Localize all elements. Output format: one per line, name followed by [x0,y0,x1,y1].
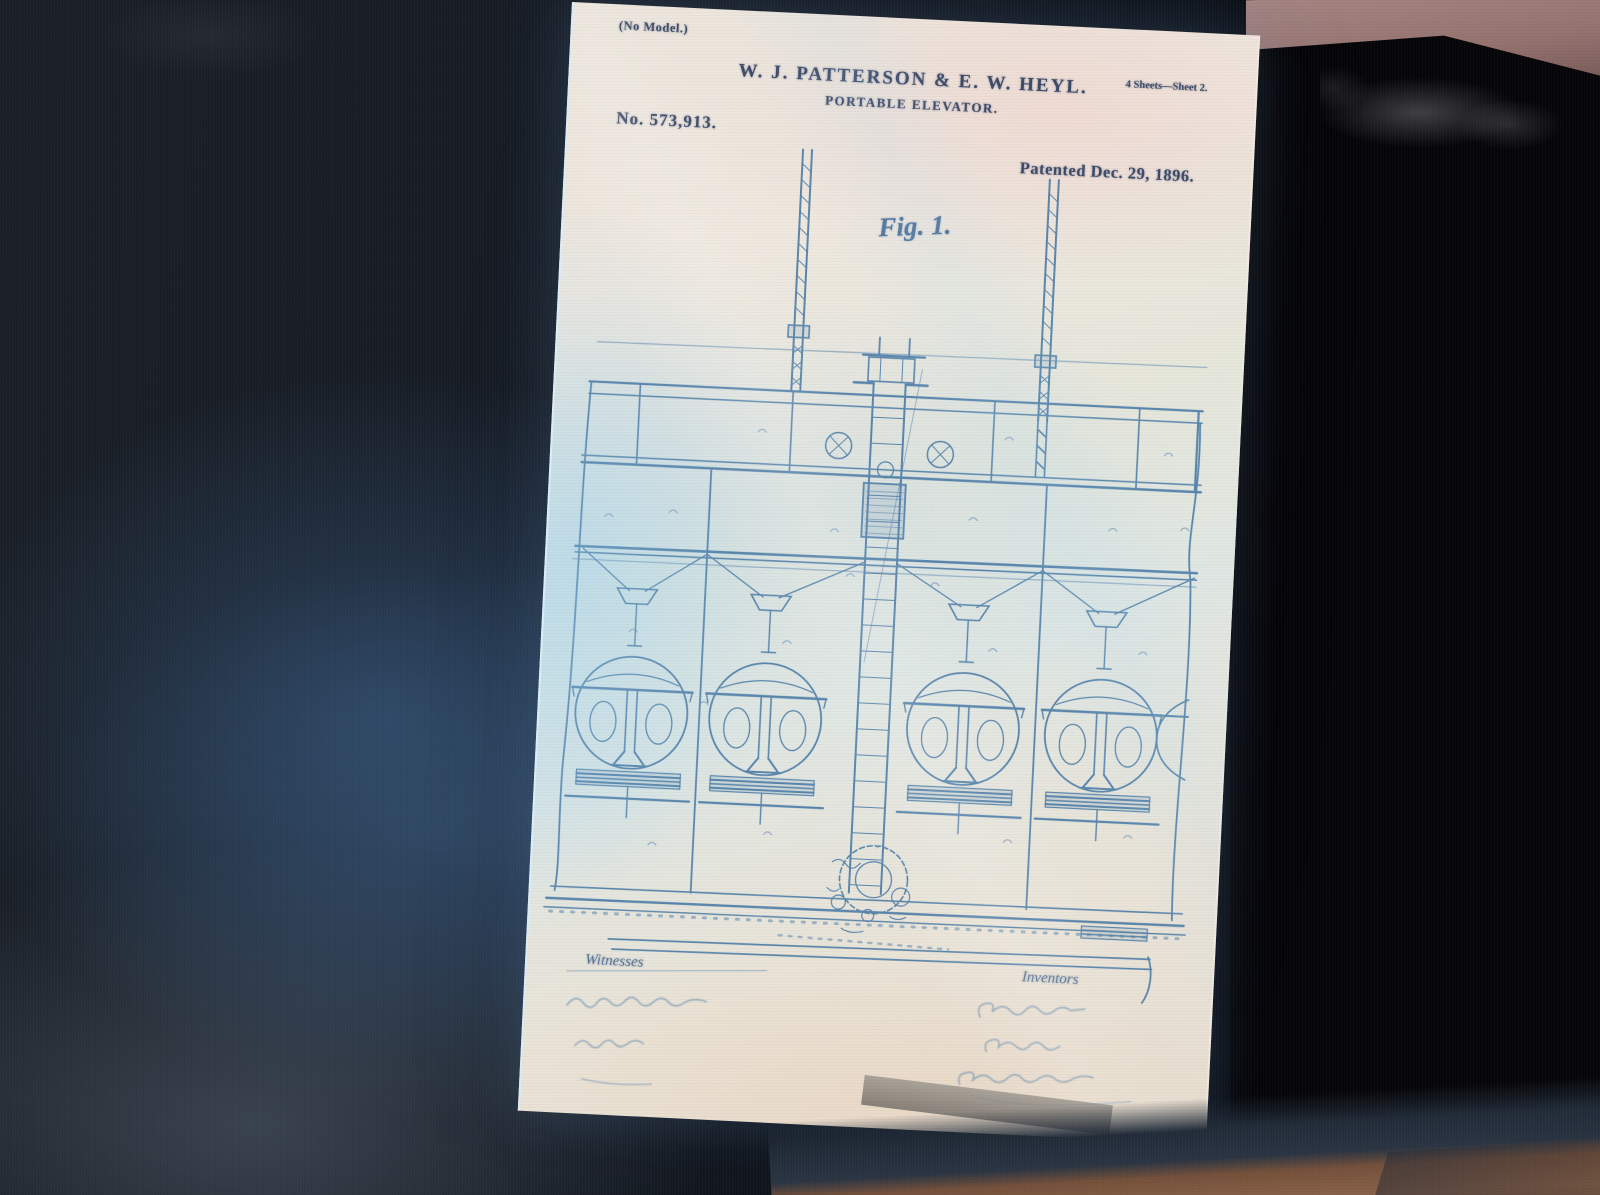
photographed-screen: (No Model.) W. J. PATTERSON & E. W. HEYL… [0,0,1600,1195]
elevator-masts [571,140,1216,909]
base-platform [540,830,1188,1005]
frame-rails [555,381,1205,921]
screen-reflection-smudge [1320,55,1570,175]
wheel-units [564,654,1189,845]
witness-signatures [563,993,706,1088]
patent-drawing-figure [520,2,1258,1144]
bezel-shadow-shape-right [1363,1136,1600,1195]
patent-page: (No Model.) W. J. PATTERSON & E. W. HEYL… [518,2,1260,1144]
